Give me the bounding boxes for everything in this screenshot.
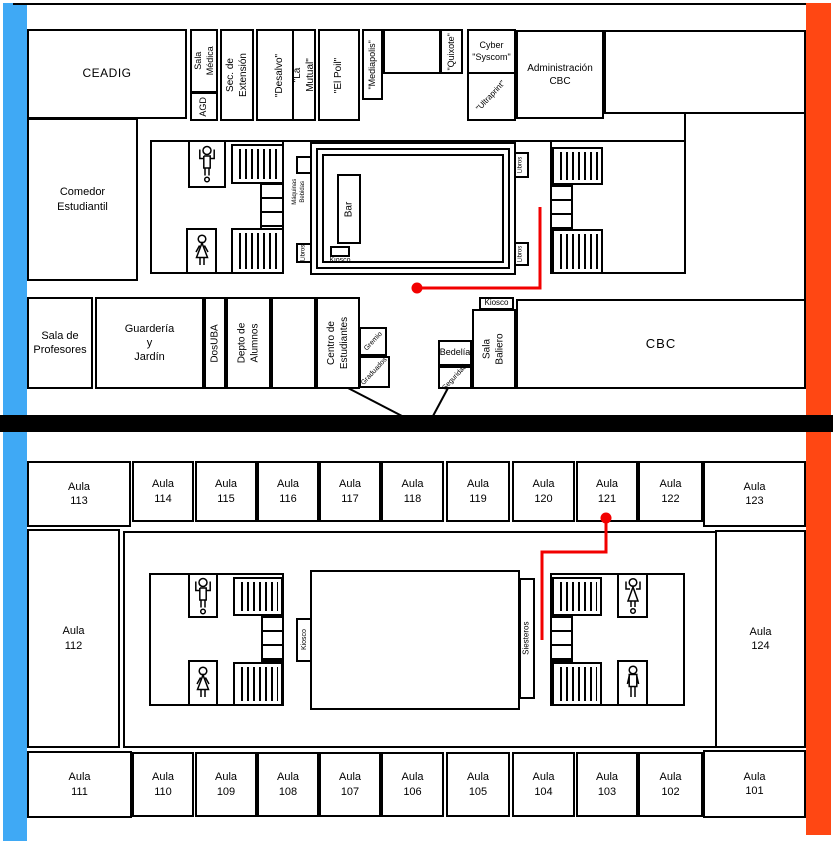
aula-103: Aula103 [576,752,638,817]
aula-109: Aula109 [195,752,257,817]
room-graduados: Graduados [359,356,390,388]
campus-floor-plan-map: CEADIG Sala Médica AGD Sec. de Extensión… [0,0,833,844]
lower-right-staircase-bottom [552,662,602,706]
room-label: "El Poil" [332,57,345,92]
aula-121: Aula121 [576,461,638,522]
room-label: Siesteros [522,622,532,655]
mens-restroom-icon [623,665,643,701]
aula-106: Aula106 [381,752,444,817]
aula-110: Aula110 [132,752,194,817]
upper-bottom-empty-room [271,297,316,389]
aula-label: Aula102 [659,770,681,799]
room-label: Kiosco [329,256,350,265]
upper-left-mens-restroom [188,140,226,188]
room-label: Sala Baliero [481,333,507,364]
room-label: Kiosco [484,298,508,308]
room-guarderia-jardin: Guardería y Jardín [95,297,204,389]
room-label: Gremio [362,330,384,353]
room-label: "Mediapolis" [367,40,379,89]
room-label: Sala de Profesores [33,329,86,358]
aula-113: Aula113 [27,461,131,527]
aula-label: Aula116 [277,477,299,506]
aula-label: Aula111 [68,770,90,799]
aula-label: Aula110 [152,770,174,799]
lower-left-staircase-bottom [233,662,283,706]
upper-left-stair-landing [260,183,284,230]
mens-restroom-icon [193,577,213,615]
room-centro-estudiantes: Centro de Estudiantes [316,297,360,389]
aula-114: Aula114 [132,461,194,522]
room-label: Sala Médica [192,46,215,75]
upper-top-bay [383,29,441,74]
libros-stand-right-top: Libros [514,152,529,178]
upper-right-stair-landing [550,185,573,231]
lower-left-stair-landing [261,616,284,662]
room-cyber-syscom: Cyber "Syscom" [467,29,516,74]
room-label: CBC [646,336,676,353]
aula-120: Aula120 [512,461,575,522]
upper-right-staircase-bottom [552,229,603,274]
aula-label: Aula103 [596,770,618,799]
aula-label: Aula117 [339,477,361,506]
aula-label: Aula104 [532,770,554,799]
room-ultraprint: "Ultraprint" [467,72,516,121]
aula-111: Aula111 [27,751,132,818]
room-bar: Bar [337,174,361,244]
room-label: Kiosco [299,629,308,650]
room-label: Depto de Alumnos [236,323,262,364]
room-label: Bar [343,201,356,217]
room-label: Libros [300,245,308,261]
aula-107: Aula107 [319,752,381,817]
room-administracion-cbc: Administración CBC [516,30,604,119]
aula-label: Aula107 [339,770,361,799]
lower-right-stair-landing [550,616,573,662]
room-sec-extension: Sec. de Extensión [220,29,254,121]
aula-108: Aula108 [257,752,319,817]
room-cbc: CBC [516,299,806,389]
aula-119: Aula119 [446,461,510,522]
room-label: "La Mutual" [291,58,317,92]
room-label: CEADIG [82,66,131,82]
room-la-mutual: "La Mutual" [292,29,316,121]
upper-left-staircase-bottom [231,228,284,274]
room-label: AGD [198,97,210,117]
lower-kiosco: Kiosco [296,618,312,662]
room-label: Sec. de Extensión [224,53,250,97]
womens-restroom-icon [192,234,212,268]
aula-label: Aula121 [596,477,618,506]
room-comedor-estudiantil: Comedor Estudiantil [27,118,138,281]
room-label: Libros [518,246,526,262]
room-label: Centro de Estudiantes [325,317,351,369]
womens-restroom-icon [623,577,643,615]
entrance-funnel-right [433,388,448,416]
aula-label: Aula101 [743,770,765,799]
room-depto-alumnos: Depto de Alumnos [226,297,271,389]
room-quixote: "Quixote" [440,29,463,74]
aula-label: Aula106 [401,770,423,799]
room-label: DosUBA [209,324,222,362]
upper-left-womens-restroom [186,228,217,274]
aula-label: Aula114 [152,477,174,506]
room-label: Cyber "Syscom" [472,40,510,63]
room-label: Comedor Estudiantil [57,185,108,214]
route-marker-upper [412,283,423,294]
libros-stand-left: Libros [296,243,312,263]
aula-label: Aula123 [743,480,765,509]
vending-machines-label-box: Máquinas Bebidas [288,176,312,208]
aula-label: Aula119 [467,477,489,506]
aula-117: Aula117 [319,461,381,522]
room-agd: AGD [190,92,218,121]
room-dosuba: DosUBA [204,297,226,389]
libros-stand-right-bottom: Libros [514,242,529,266]
aula-123: Aula123 [703,461,806,527]
bar-kiosco-label-box: Kiosco [322,256,358,265]
room-bedelia: Bedelía [438,340,472,366]
aula-115: Aula115 [195,461,257,522]
aula-101: Aula101 [703,750,806,818]
aula-112: Aula112 [27,529,120,748]
room-label: "Desalvo" [273,53,286,96]
lower-right-womens-restroom [617,573,648,618]
room-label: Libros [518,157,526,173]
lower-left-womens-restroom [188,660,218,706]
aula-label: Aula112 [62,624,84,653]
aula-label: Aula115 [215,477,237,506]
entrance-funnel-left [348,388,402,416]
room-label: Administración CBC [527,62,593,88]
upper-top-right-area [604,30,806,114]
lower-central-hall [310,570,520,710]
aula-104: Aula104 [512,752,575,817]
room-seguridad: Seguridad [438,366,472,389]
aula-label: Aula109 [215,770,237,799]
aula-122: Aula122 [638,461,703,522]
aula-label: Aula105 [467,770,489,799]
aula-116: Aula116 [257,461,319,522]
lower-left-staircase-top [233,577,283,616]
room-label: Bedelía [440,347,471,359]
room-label: "Ultraprint" [475,79,509,114]
upper-right-staircase-top [552,147,603,185]
upper-left-staircase-top [231,144,284,184]
room-ceadig: CEADIG [27,29,187,119]
room-sala-baliero: Sala Baliero [472,309,516,389]
room-label: Seguridad [441,363,469,393]
floor-separator-band [0,415,833,432]
lower-right-staircase-top [552,577,602,616]
room-mediapolis: "Mediapolis" [362,29,383,100]
lower-left-mens-restroom [188,573,218,618]
aula-label: Aula122 [659,477,681,506]
aula-105: Aula105 [446,752,510,817]
room-label: Máquinas Bebidas [292,179,308,205]
aula-118: Aula118 [381,461,444,522]
room-sala-medica: Sala Médica [190,29,218,93]
aula-label: Aula113 [68,480,90,509]
aula-label: Aula118 [401,477,423,506]
aula-124: Aula124 [715,530,806,748]
room-label: Guardería y Jardín [125,322,175,365]
room-el-poil: "El Poil" [318,29,360,121]
room-label: "Quixote" [446,33,458,70]
lower-siesteros: Siesteros [519,578,535,699]
aula-102: Aula102 [638,752,703,817]
womens-restroom-icon [193,666,213,700]
room-sala-profesores: Sala de Profesores [27,297,93,389]
aula-label: Aula120 [532,477,554,506]
room-gremio: Gremio [359,327,387,356]
aula-label: Aula124 [749,625,771,654]
lower-right-mens-restroom [617,660,648,706]
room-label: Graduados [359,356,389,388]
aula-label: Aula108 [277,770,299,799]
vending-machines-box [296,156,312,174]
mens-restroom-icon [197,145,217,183]
